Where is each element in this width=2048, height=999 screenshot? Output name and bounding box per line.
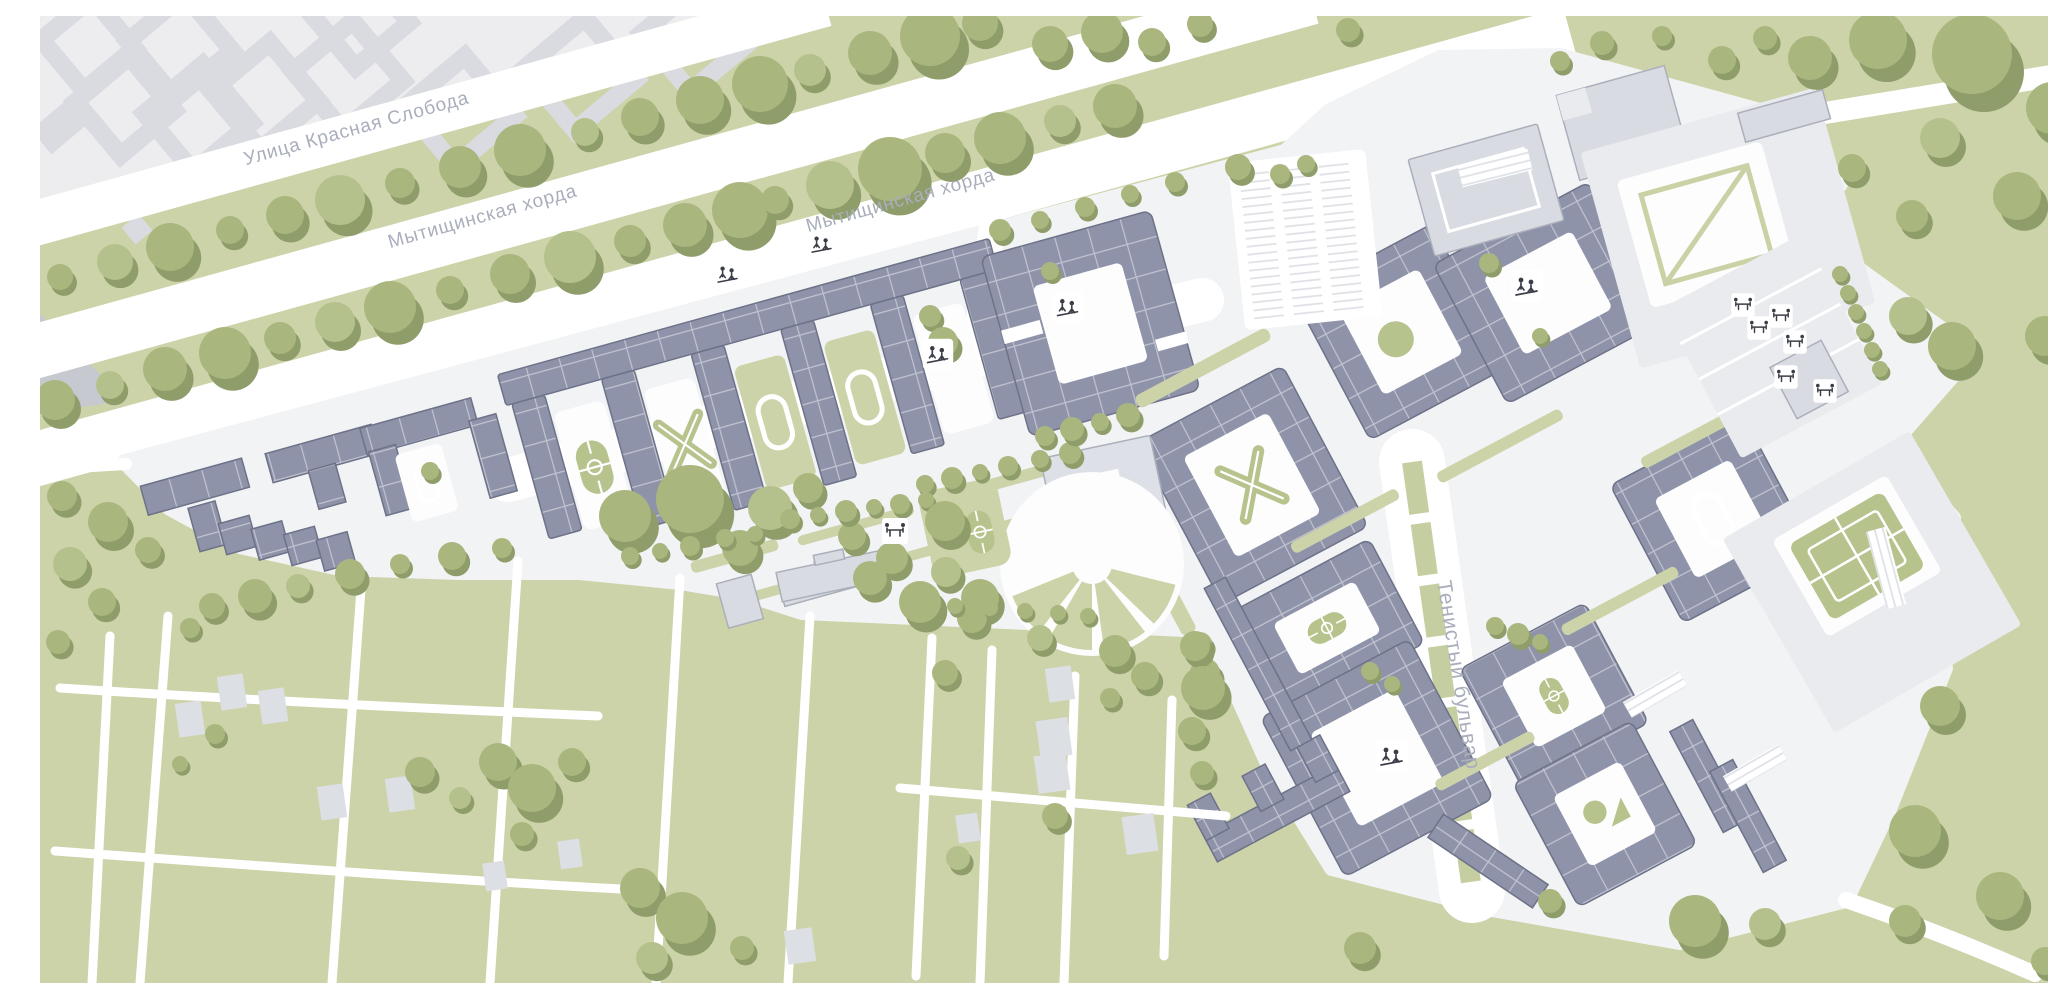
radial-plaza	[1000, 472, 1184, 656]
picnic-table-icon	[882, 518, 908, 544]
playground-icon	[1376, 740, 1408, 772]
picnic-table-icon	[1813, 379, 1836, 402]
playground-icon	[1511, 270, 1543, 302]
playground-icon	[923, 339, 953, 369]
picnic-table-icon	[1769, 304, 1792, 327]
picnic-table-icon	[1747, 316, 1770, 339]
playground-icon	[714, 260, 743, 289]
playground-icon	[1053, 292, 1083, 322]
picnic-table-icon	[1783, 330, 1806, 353]
picnic-table-icon	[1774, 365, 1797, 388]
master-plan-map: Улица Красная Слобода Мытищинская хорда …	[40, 16, 2048, 983]
picnic-table-icon	[1731, 293, 1754, 316]
